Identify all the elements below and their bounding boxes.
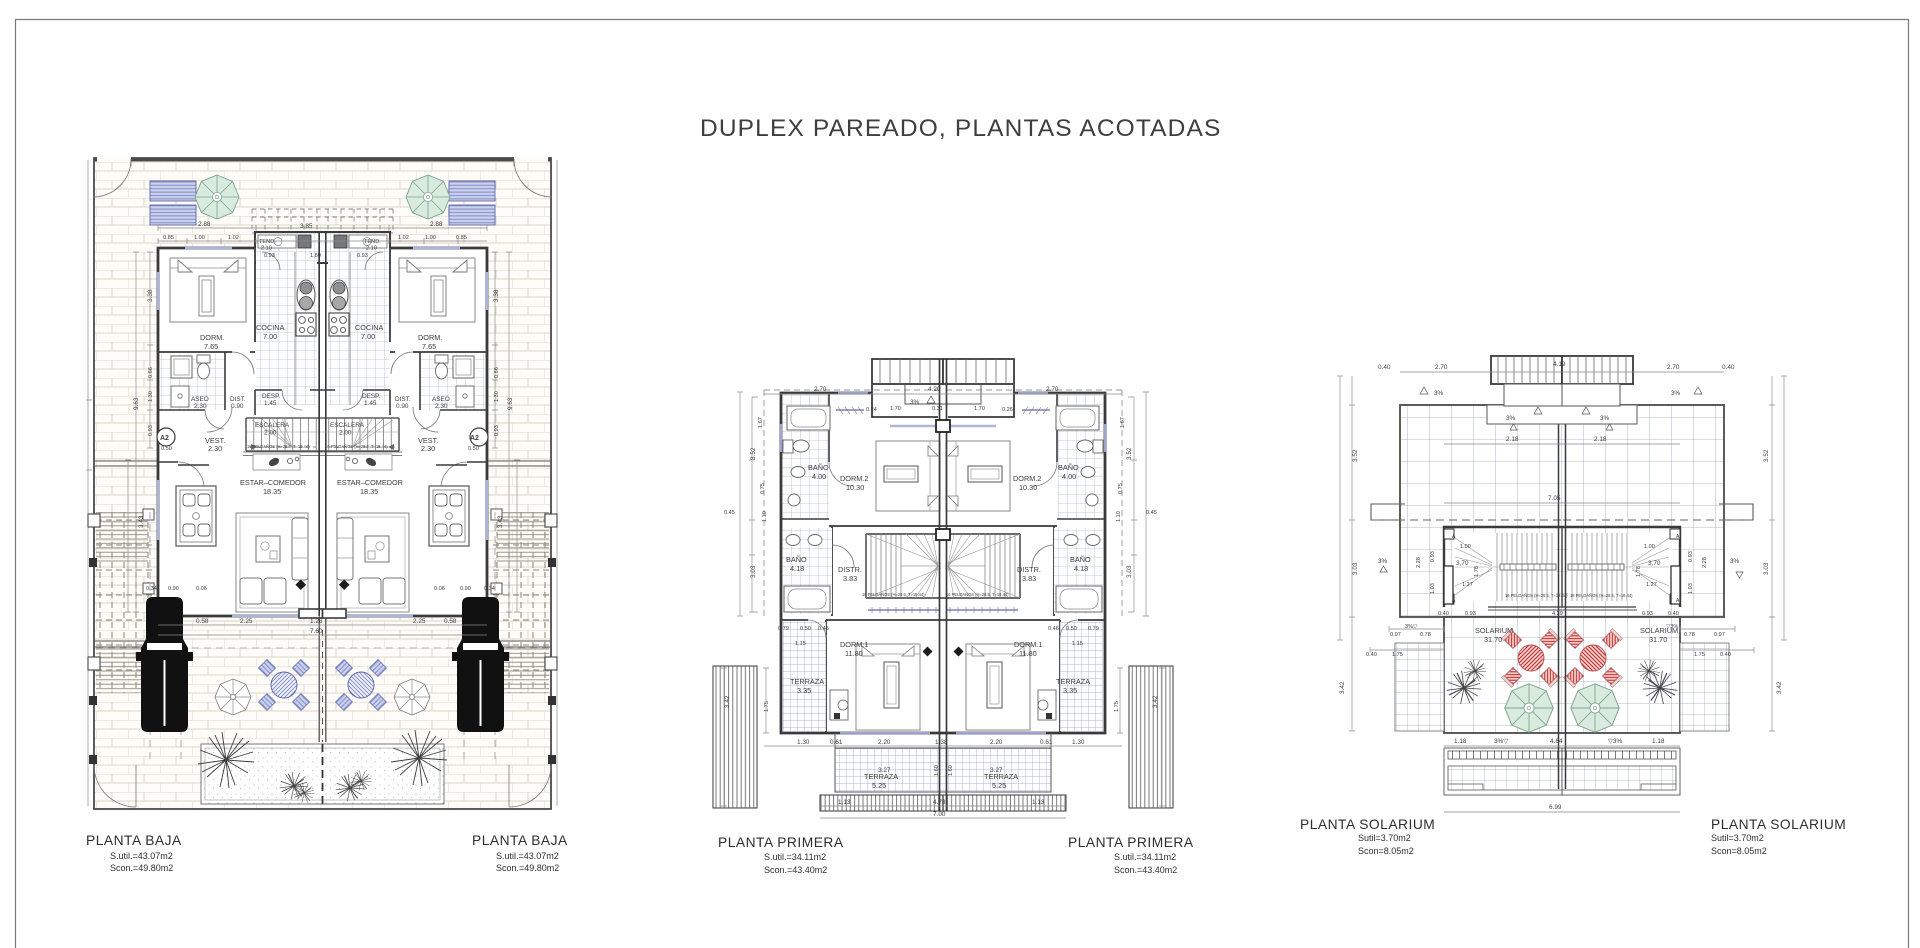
svg-text:0.93: 0.93 (148, 425, 154, 436)
svg-text:PLANTA SOLARIUM: PLANTA SOLARIUM (1300, 817, 1435, 832)
svg-text:2.70: 2.70 (814, 386, 827, 393)
svg-text:10.30: 10.30 (1019, 483, 1037, 492)
svg-text:Sutil=3.70m2: Sutil=3.70m2 (1358, 833, 1411, 843)
svg-text:2.18: 2.18 (1594, 436, 1607, 443)
svg-text:2.00: 2.00 (339, 430, 352, 437)
svg-text:0.58: 0.58 (196, 618, 209, 625)
svg-text:1.10: 1.10 (1116, 511, 1122, 522)
svg-text:0.78: 0.78 (1684, 632, 1695, 638)
svg-text:1.15: 1.15 (795, 641, 806, 647)
svg-text:1.30: 1.30 (797, 739, 810, 746)
svg-text:2.70: 2.70 (1435, 364, 1448, 371)
svg-text:1.45: 1.45 (264, 400, 277, 407)
svg-text:DORM.1: DORM.1 (840, 640, 868, 649)
svg-text:Scon.=49.80m2: Scon.=49.80m2 (496, 863, 559, 873)
svg-text:DORM.1: DORM.1 (1014, 640, 1042, 649)
svg-text:2.28: 2.28 (1416, 557, 1422, 568)
svg-text:BAÑO: BAÑO (1070, 555, 1091, 564)
svg-text:Scon=8.05m2: Scon=8.05m2 (1358, 846, 1414, 856)
svg-text:3.38: 3.38 (147, 289, 154, 302)
svg-text:7.00: 7.00 (933, 811, 946, 818)
svg-text:0.40: 0.40 (1438, 611, 1449, 617)
svg-text:4.19: 4.19 (1553, 361, 1566, 368)
svg-text:SOLARIUM: SOLARIUM (1475, 626, 1513, 635)
svg-text:Scon.=43.40m2: Scon.=43.40m2 (1114, 865, 1177, 875)
svg-text:31.70: 31.70 (1649, 635, 1667, 644)
svg-text:1.13: 1.13 (838, 799, 851, 806)
svg-text:4.18: 4.18 (1074, 564, 1088, 573)
svg-text:1.67: 1.67 (758, 417, 764, 428)
svg-text:0.93: 0.93 (494, 425, 500, 436)
svg-text:2.70: 2.70 (1046, 386, 1059, 393)
svg-text:4.39: 4.39 (1552, 611, 1563, 617)
svg-text:1.13: 1.13 (1032, 799, 1045, 806)
svg-text:0.50: 0.50 (800, 626, 811, 632)
svg-text:1.00: 1.00 (425, 235, 436, 241)
svg-text:0.26: 0.26 (1002, 407, 1013, 413)
svg-text:2.25: 2.25 (413, 618, 426, 625)
svg-text:3.42: 3.42 (1339, 681, 1346, 694)
svg-text:16 PELDAÑOS (H=28.5, T=18.44): 16 PELDAÑOS (H=28.5, T=18.44) (946, 592, 1009, 597)
svg-text:16 PELDAÑOS (H=28.5, T=18.44): 16 PELDAÑOS (H=28.5, T=18.44) (862, 592, 925, 597)
svg-text:COCINA: COCINA (256, 323, 285, 332)
svg-text:1.03: 1.03 (1688, 583, 1694, 594)
svg-text:0.75: 0.75 (1118, 483, 1124, 494)
svg-text:10.30: 10.30 (846, 483, 864, 492)
svg-text:4.73: 4.73 (933, 799, 946, 806)
svg-text:2.00: 2.00 (264, 430, 277, 437)
svg-text:0.40: 0.40 (1720, 652, 1731, 658)
svg-text:3.83: 3.83 (1022, 574, 1036, 583)
svg-text:3%: 3% (1378, 558, 1388, 565)
svg-text:1.75: 1.75 (1694, 652, 1705, 658)
svg-text:3%▽: 3%▽ (1494, 738, 1508, 745)
svg-text:1.15: 1.15 (1072, 641, 1083, 647)
svg-text:ESCALERA: ESCALERA (255, 422, 290, 429)
svg-text:0.61: 0.61 (830, 739, 843, 746)
svg-text:ESCALERA: ESCALERA (330, 422, 365, 429)
svg-text:3.52: 3.52 (750, 447, 757, 460)
svg-text:7.65: 7.65 (204, 342, 218, 351)
svg-text:18.35: 18.35 (360, 487, 378, 496)
svg-text:7.00: 7.00 (263, 332, 277, 341)
svg-text:0.06: 0.06 (434, 586, 445, 592)
svg-text:0.66: 0.66 (148, 367, 154, 378)
svg-text:3.52: 3.52 (1126, 447, 1133, 460)
svg-text:1.60: 1.60 (934, 765, 940, 776)
svg-text:1.18: 1.18 (1454, 738, 1467, 745)
svg-text:COCINA: COCINA (355, 323, 384, 332)
svg-text:0.93: 0.93 (1688, 551, 1694, 562)
svg-text:3%: 3% (1434, 390, 1444, 397)
svg-text:1.27: 1.27 (1646, 582, 1657, 588)
svg-text:Scon=8.05m2: Scon=8.05m2 (1711, 846, 1767, 856)
svg-text:4.64: 4.64 (1550, 738, 1563, 745)
svg-text:5.25: 5.25 (872, 781, 886, 790)
svg-text:DORM.: DORM. (418, 333, 442, 342)
svg-text:S.util.=43.07m2: S.util.=43.07m2 (496, 851, 559, 861)
svg-text:1.38: 1.38 (935, 739, 948, 746)
svg-text:3.03: 3.03 (1763, 562, 1770, 575)
svg-text:3.85: 3.85 (300, 223, 313, 230)
svg-text:1.00: 1.00 (1644, 544, 1655, 550)
svg-text:0.90: 0.90 (460, 586, 471, 592)
svg-text:3.52: 3.52 (1763, 449, 1770, 462)
svg-text:31.70: 31.70 (1484, 635, 1502, 644)
svg-text:DUPLEX PAREADO, PLANTAS ACOTAD: DUPLEX PAREADO, PLANTAS ACOTADAS (700, 115, 1222, 142)
svg-text:3,70: 3,70 (1648, 560, 1661, 567)
svg-text:0.93: 0.93 (1642, 611, 1653, 617)
svg-text:1.78: 1.78 (1474, 566, 1480, 577)
svg-text:1.67: 1.67 (1120, 417, 1126, 428)
svg-text:0.40: 0.40 (1668, 611, 1679, 617)
svg-text:▽3%: ▽3% (1666, 624, 1678, 630)
svg-text:0.45: 0.45 (1146, 510, 1157, 516)
svg-text:DESP.: DESP. (362, 393, 381, 400)
svg-text:A2: A2 (160, 435, 169, 442)
svg-text:0.46: 0.46 (818, 626, 829, 632)
svg-text:2.20: 2.20 (878, 739, 891, 746)
svg-text:DORM.2: DORM.2 (840, 474, 868, 483)
svg-text:3.43: 3.43 (497, 515, 504, 528)
svg-text:3.42: 3.42 (724, 695, 731, 708)
svg-text:PLANTA SOLARIUM: PLANTA SOLARIUM (1711, 817, 1846, 832)
svg-text:2.10: 2.10 (261, 246, 272, 252)
svg-text:BAÑO: BAÑO (1058, 463, 1079, 472)
svg-text:0.31: 0.31 (932, 406, 943, 412)
svg-text:2.18: 2.18 (1506, 436, 1519, 443)
svg-text:1.78: 1.78 (1636, 566, 1642, 577)
svg-text:2.25: 2.25 (240, 618, 253, 625)
svg-text:1.45: 1.45 (364, 400, 377, 407)
svg-text:0.24: 0.24 (866, 407, 877, 413)
svg-text:7.65: 7.65 (422, 342, 436, 351)
svg-text:6.99: 6.99 (1549, 804, 1562, 811)
svg-text:3.35: 3.35 (1063, 686, 1077, 695)
svg-text:3.52: 3.52 (1352, 449, 1359, 462)
svg-text:TEND.: TEND. (259, 239, 276, 245)
svg-text:DIST.: DIST. (395, 396, 411, 403)
svg-text:0.34: 0.34 (146, 586, 157, 592)
svg-text:2.88: 2.88 (198, 221, 211, 228)
svg-text:BAÑO: BAÑO (786, 555, 807, 564)
svg-text:0.45: 0.45 (724, 510, 735, 516)
svg-text:2.30: 2.30 (208, 444, 222, 453)
svg-text:3%▽: 3%▽ (1405, 624, 1418, 630)
svg-text:0.50: 0.50 (468, 446, 479, 452)
svg-text:ASEO: ASEO (191, 396, 209, 403)
svg-text:2.30: 2.30 (194, 403, 207, 410)
svg-text:1.75: 1.75 (764, 701, 770, 712)
svg-text:TEND.: TEND. (364, 239, 381, 245)
svg-text:9.63: 9.63 (133, 397, 140, 410)
svg-text:2.20: 2.20 (990, 739, 1003, 746)
svg-text:3.38: 3.38 (493, 289, 500, 302)
svg-text:0.78: 0.78 (1420, 632, 1431, 638)
svg-text:4.00: 4.00 (812, 472, 826, 481)
svg-text:3.83: 3.83 (843, 574, 857, 583)
svg-text:3,70: 3,70 (1456, 560, 1469, 567)
svg-text:1.80: 1.80 (310, 253, 321, 259)
svg-text:0.97: 0.97 (1390, 632, 1401, 638)
svg-text:▽3%: ▽3% (1608, 738, 1622, 745)
svg-text:4.00: 4.00 (1062, 472, 1076, 481)
svg-text:DIST.: DIST. (230, 396, 246, 403)
svg-text:18.35: 18.35 (263, 487, 281, 496)
svg-text:11.80: 11.80 (1019, 649, 1037, 658)
svg-text:0.90: 0.90 (168, 586, 179, 592)
svg-text:3.27: 3.27 (878, 767, 891, 774)
svg-text:1.30: 1.30 (1072, 739, 1085, 746)
svg-text:3.42: 3.42 (1152, 695, 1159, 708)
svg-text:1.10: 1.10 (762, 511, 768, 522)
svg-text:3.27: 3.27 (990, 767, 1003, 774)
svg-text:1.02: 1.02 (398, 235, 409, 241)
svg-text:1.75: 1.75 (1392, 652, 1403, 658)
svg-text:0.85: 0.85 (456, 235, 467, 241)
svg-text:16 PELDAÑOS (H=28.5, T=18.44): 16 PELDAÑOS (H=28.5, T=18.44) (1570, 593, 1633, 598)
svg-text:3.42: 3.42 (1776, 681, 1783, 694)
svg-text:0.66: 0.66 (494, 367, 500, 378)
svg-text:S.util.=43.07m2: S.util.=43.07m2 (110, 851, 173, 861)
svg-text:TERRAZA: TERRAZA (790, 677, 824, 686)
svg-text:3.43: 3.43 (138, 515, 145, 528)
svg-text:PLANTA PRIMERA: PLANTA PRIMERA (1068, 835, 1194, 850)
svg-text:1.00: 1.00 (194, 235, 205, 241)
svg-text:0.58: 0.58 (444, 618, 457, 625)
svg-text:3%: 3% (1600, 415, 1610, 422)
svg-text:1.60: 1.60 (948, 765, 954, 776)
svg-text:0.50: 0.50 (1066, 626, 1077, 632)
svg-text:Scon.=49.80m2: Scon.=49.80m2 (110, 863, 173, 873)
svg-text:DISTR.: DISTR. (838, 565, 862, 574)
svg-text:0.85: 0.85 (163, 235, 174, 241)
svg-text:DISTR.: DISTR. (1017, 565, 1041, 574)
svg-text:0.93: 0.93 (1430, 551, 1436, 562)
svg-text:2.88: 2.88 (430, 221, 443, 228)
svg-text:DORM.: DORM. (200, 333, 224, 342)
svg-text:Sutil=3.70m2: Sutil=3.70m2 (1711, 833, 1764, 843)
svg-text:A2: A2 (470, 435, 479, 442)
svg-text:3%: 3% (910, 399, 920, 406)
svg-text:PLANTA BAJA: PLANTA BAJA (86, 833, 182, 848)
svg-text:3%: 3% (1671, 390, 1681, 397)
svg-text:0.34: 0.34 (484, 586, 495, 592)
svg-text:Scon.=43.40m2: Scon.=43.40m2 (764, 865, 827, 875)
svg-text:2.70: 2.70 (1667, 364, 1680, 371)
svg-text:1.75: 1.75 (1114, 701, 1120, 712)
svg-text:0.79: 0.79 (778, 626, 789, 632)
svg-text:3%: 3% (1730, 558, 1740, 565)
svg-text:3.35: 3.35 (797, 686, 811, 695)
svg-text:0.93: 0.93 (264, 253, 275, 259)
svg-text:4.18: 4.18 (790, 564, 804, 573)
svg-text:5.25: 5.25 (992, 781, 1006, 790)
svg-text:0.61: 0.61 (1040, 739, 1053, 746)
svg-text:DESP.: DESP. (262, 393, 281, 400)
svg-text:2.30: 2.30 (435, 403, 448, 410)
svg-text:1.30: 1.30 (148, 391, 154, 402)
svg-text:0.40: 0.40 (1722, 364, 1735, 371)
svg-text:3.03: 3.03 (1352, 562, 1359, 575)
svg-text:16 PELDAÑOS (H=28.5, T=18.44): 16 PELDAÑOS (H=28.5, T=18.44) (325, 444, 388, 449)
svg-text:0.79: 0.79 (1088, 626, 1099, 632)
svg-text:0.93: 0.93 (1465, 611, 1476, 617)
svg-text:S.util.=34.11m2: S.util.=34.11m2 (1114, 852, 1176, 862)
svg-text:0.97: 0.97 (1714, 632, 1725, 638)
svg-text:1.02: 1.02 (228, 235, 239, 241)
svg-text:11.80: 11.80 (845, 649, 863, 658)
svg-text:ESTAR–COMEDOR: ESTAR–COMEDOR (337, 478, 403, 487)
svg-text:0.46: 0.46 (1048, 626, 1059, 632)
svg-text:1.70: 1.70 (890, 406, 901, 412)
svg-text:ASEO: ASEO (432, 396, 450, 403)
svg-text:0.75: 0.75 (760, 483, 766, 494)
svg-text:ESTAR–COMEDOR: ESTAR–COMEDOR (240, 478, 306, 487)
svg-text:3%: 3% (1506, 415, 1516, 422)
svg-text:4.20: 4.20 (928, 386, 941, 393)
svg-text:16 PELDAÑOS (H=28.5, T=18.44): 16 PELDAÑOS (H=28.5, T=18.44) (1505, 593, 1568, 598)
svg-text:PLANTA PRIMERA: PLANTA PRIMERA (718, 835, 844, 850)
svg-text:0.90: 0.90 (396, 403, 409, 410)
svg-text:TERRAZA: TERRAZA (1056, 677, 1090, 686)
svg-text:7.00: 7.00 (361, 332, 375, 341)
svg-text:BAÑO: BAÑO (808, 463, 829, 472)
svg-text:1.00: 1.00 (1460, 544, 1471, 550)
svg-text:1.30: 1.30 (494, 391, 500, 402)
svg-text:0.50: 0.50 (161, 446, 172, 452)
svg-text:1.26: 1.26 (310, 618, 323, 625)
svg-text:0.06: 0.06 (196, 586, 207, 592)
svg-text:PLANTA BAJA: PLANTA BAJA (472, 833, 568, 848)
svg-text:DORM.2: DORM.2 (1013, 474, 1041, 483)
svg-text:0.93: 0.93 (357, 253, 368, 259)
svg-text:1.03: 1.03 (1430, 583, 1436, 594)
svg-text:0.40: 0.40 (1366, 652, 1377, 658)
svg-text:3.03: 3.03 (1126, 565, 1133, 578)
svg-text:16 PELDAÑOS (H=28.5, T=18.44): 16 PELDAÑOS (H=28.5, T=18.44) (247, 444, 310, 449)
svg-text:1.70: 1.70 (974, 406, 985, 412)
svg-text:9.63: 9.63 (507, 397, 514, 410)
svg-text:0.90: 0.90 (231, 403, 244, 410)
svg-text:2.10: 2.10 (366, 246, 377, 252)
svg-text:1.27: 1.27 (1462, 582, 1473, 588)
svg-text:7.60: 7.60 (310, 628, 323, 635)
svg-text:7.05: 7.05 (1548, 495, 1561, 502)
svg-text:1.18: 1.18 (1652, 738, 1665, 745)
svg-text:S.util.=34.11m2: S.util.=34.11m2 (764, 852, 826, 862)
svg-text:0.40: 0.40 (1378, 364, 1391, 371)
svg-text:2.28: 2.28 (1702, 557, 1708, 568)
svg-text:2.30: 2.30 (421, 444, 435, 453)
svg-text:3.03: 3.03 (750, 565, 757, 578)
